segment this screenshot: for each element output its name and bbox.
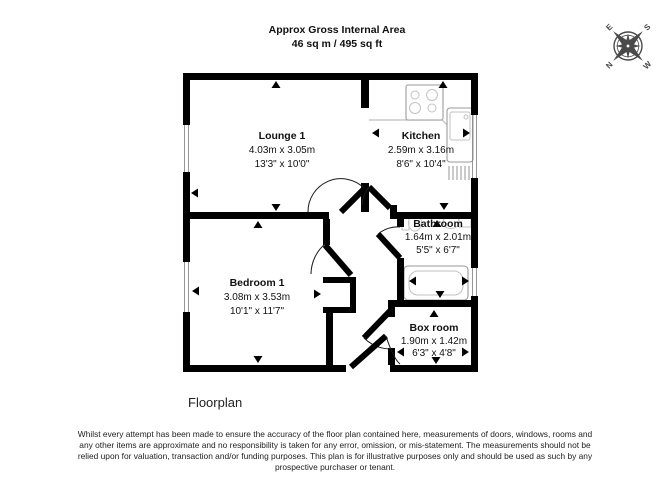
compass-n-label: N xyxy=(604,60,615,71)
room-metric: 3.08m x 3.53m xyxy=(224,292,290,303)
room-imperial: 6'3" x 4'8" xyxy=(412,348,456,359)
floorplan-page: Approx Gross Internal Area 46 sq m / 495… xyxy=(0,0,670,482)
room-metric: 1.90m x 1.42m xyxy=(401,336,467,347)
room-label-boxroom: Box room 1.90m x 1.42m 6'3" x 4'8" xyxy=(401,322,467,359)
plan-title: Approx Gross Internal Area 46 sq m / 495… xyxy=(269,24,406,50)
room-name: Box room xyxy=(409,322,458,334)
disclaimer: Whilst every attempt has been made to en… xyxy=(78,429,593,472)
door-bathroom xyxy=(378,227,400,258)
room-metric: 2.59m x 3.16m xyxy=(388,145,454,156)
room-label-bathroom: Bathroom 1.64m x 2.01m 5'5" x 6'7" xyxy=(405,218,471,256)
room-imperial: 5'5" x 6'7" xyxy=(416,245,460,256)
title-line-1: Approx Gross Internal Area xyxy=(269,24,406,36)
door-bedroom xyxy=(311,244,351,275)
alcove-wall xyxy=(323,277,356,313)
hob-icon xyxy=(406,85,443,120)
disclaimer-line-4: prospective purchaser or tenant. xyxy=(275,462,395,472)
compass-e-label: E xyxy=(604,22,615,33)
compass-rose-icon: E S N W xyxy=(598,16,657,75)
room-name: Kitchen xyxy=(402,130,441,142)
sink-icon xyxy=(447,108,473,180)
room-label-kitchen: Kitchen 2.59m x 3.16m 8'6" x 10'4" xyxy=(388,130,454,170)
room-metric: 4.03m x 3.05m xyxy=(249,145,315,156)
room-name: Bathroom xyxy=(413,218,463,230)
door-lounge xyxy=(308,179,364,212)
room-imperial: 13'3" x 10'0" xyxy=(255,159,310,170)
floorplan-canvas: Approx Gross Internal Area 46 sq m / 495… xyxy=(0,0,670,482)
window-bedroom xyxy=(185,262,189,312)
room-imperial: 8'6" x 10'4" xyxy=(396,159,446,170)
disclaimer-line-3: relied upon for valuation, transaction a… xyxy=(78,451,593,461)
window-lounge xyxy=(185,125,189,172)
floorplan-caption: Floorplan xyxy=(188,395,242,410)
room-name: Bedroom 1 xyxy=(230,277,285,289)
room-metric: 1.64m x 2.01m xyxy=(405,232,471,243)
room-name: Lounge 1 xyxy=(259,130,306,142)
disclaimer-line-2: any other items are approximate and no r… xyxy=(79,440,591,450)
compass-s-label: S xyxy=(642,22,653,33)
disclaimer-line-1: Whilst every attempt has been made to en… xyxy=(78,429,593,439)
compass-w-label: W xyxy=(641,59,653,71)
room-label-bedroom: Bedroom 1 3.08m x 3.53m 10'1" x 11'7" xyxy=(224,277,290,317)
window-bathroom xyxy=(473,268,477,296)
room-label-lounge: Lounge 1 4.03m x 3.05m 13'3" x 10'0" xyxy=(249,130,315,170)
room-imperial: 10'1" x 11'7" xyxy=(230,306,285,317)
title-line-2: 46 sq m / 495 sq ft xyxy=(292,38,383,50)
